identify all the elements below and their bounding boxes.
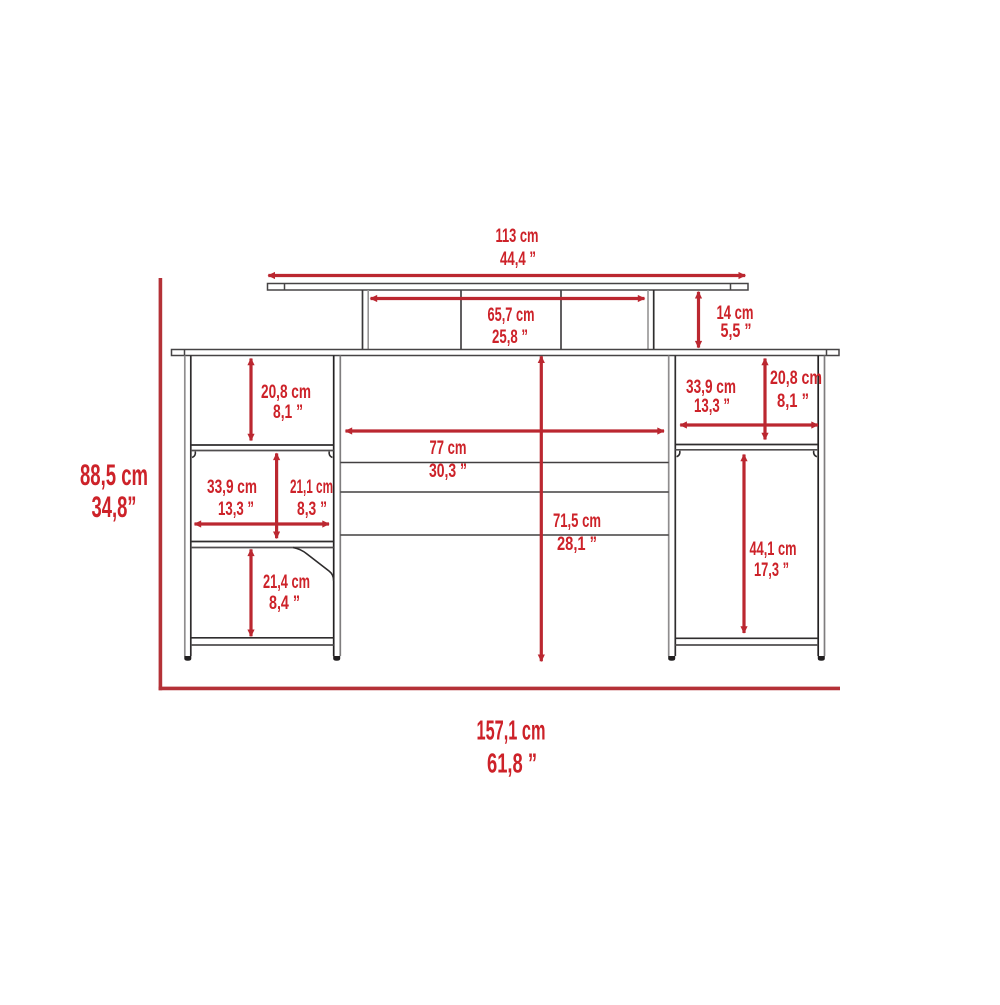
svg-text:8,4 ”: 8,4 ” xyxy=(269,593,300,614)
svg-text:8,1 ”: 8,1 ” xyxy=(777,391,809,412)
svg-text:20,8 cm: 20,8 cm xyxy=(261,382,311,403)
svg-text:25,8 ”: 25,8 ” xyxy=(492,327,528,348)
svg-text:88,5 cm: 88,5 cm xyxy=(80,459,148,492)
svg-text:8,3 ”: 8,3 ” xyxy=(297,499,327,520)
svg-text:21,1 cm: 21,1 cm xyxy=(290,477,333,498)
svg-text:44,4 ”: 44,4 ” xyxy=(500,249,536,270)
svg-text:71,5 cm: 71,5 cm xyxy=(553,511,601,532)
svg-text:13,3 ”: 13,3 ” xyxy=(218,499,254,520)
svg-text:157,1 cm: 157,1 cm xyxy=(477,715,546,746)
svg-text:65,7 cm: 65,7 cm xyxy=(488,305,535,326)
svg-text:13,3 ”: 13,3 ” xyxy=(694,396,730,417)
svg-text:28,1 ”: 28,1 ” xyxy=(557,534,597,555)
svg-text:30,3 ”: 30,3 ” xyxy=(429,461,467,482)
svg-text:33,9 cm: 33,9 cm xyxy=(686,377,736,398)
svg-text:33,9 cm: 33,9 cm xyxy=(207,477,257,498)
svg-text:77 cm: 77 cm xyxy=(430,438,467,459)
svg-text:8,1 ”: 8,1 ” xyxy=(273,402,303,423)
svg-text:61,8 ”: 61,8 ” xyxy=(487,748,537,779)
svg-text:113 cm: 113 cm xyxy=(496,226,539,247)
svg-text:21,4 cm: 21,4 cm xyxy=(263,572,310,593)
svg-text:34,8”: 34,8” xyxy=(92,491,137,524)
svg-text:44,1 cm: 44,1 cm xyxy=(750,539,797,560)
svg-text:5,5 ”: 5,5 ” xyxy=(721,321,752,342)
svg-text:17,3 ”: 17,3 ” xyxy=(754,560,789,581)
svg-text:20,8 cm: 20,8 cm xyxy=(770,368,822,389)
